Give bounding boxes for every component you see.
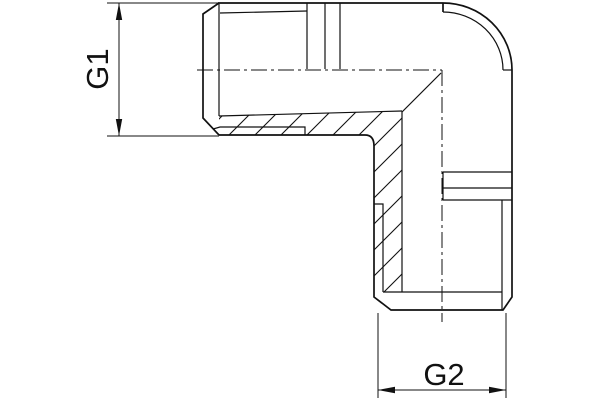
g1-arrow-down (116, 119, 122, 136)
centerlines (197, 70, 442, 322)
thread-detail-lines (213, 3, 512, 310)
inner-corner-arc (443, 12, 503, 70)
elbow-outline (203, 3, 512, 310)
g2-arrow-left (378, 387, 395, 393)
g2-dimension: G2 (378, 313, 506, 398)
g2-label: G2 (423, 357, 464, 392)
left-thread-upper-line (220, 11, 307, 13)
elbow-fitting-drawing: G1 G2 (0, 0, 600, 400)
g1-arrow-up (116, 3, 122, 20)
bore-miter-edge (402, 73, 441, 112)
g2-arrow-right (489, 387, 506, 393)
technical-drawing-canvas: G1 G2 (0, 0, 600, 400)
g1-label: G1 (80, 48, 115, 89)
